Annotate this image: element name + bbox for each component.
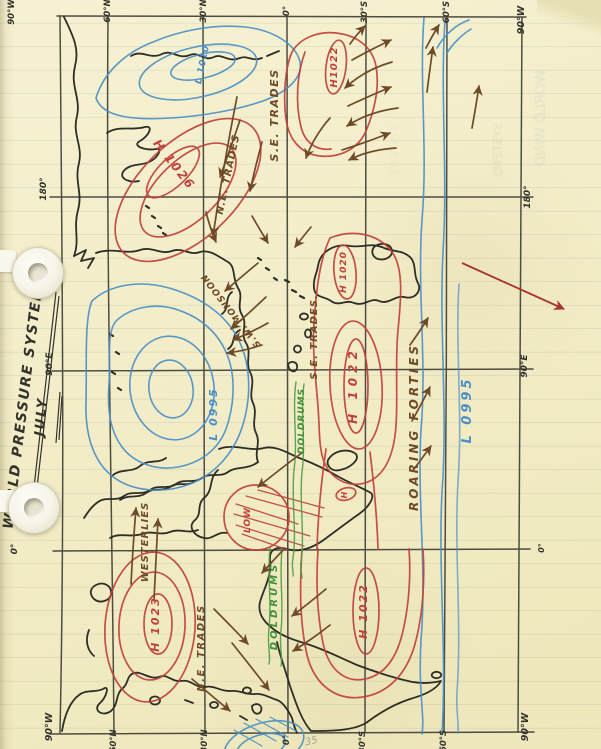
hand-drawn-map: WORLD WIND SYSTEMS SYSTEMS xyxy=(0,0,601,749)
axis-label: 0° xyxy=(10,544,20,555)
label-low-0995-south: L 0995 xyxy=(460,377,475,444)
map-graticule xyxy=(50,16,534,734)
label-westerlies: WESTERLIES xyxy=(140,502,151,583)
notebook-page: WORLD WIND SYSTEMS SYSTEMS xyxy=(0,0,601,749)
punch-hole xyxy=(8,482,60,534)
label-low-0995-asia: L 0995 xyxy=(207,387,220,440)
label-doldrums-2: DOLDRUMS xyxy=(269,562,280,650)
punch-hole xyxy=(12,247,64,299)
axis-label: 0° xyxy=(282,6,292,16)
label-low-center: LOW xyxy=(243,507,253,533)
axis-label: 60°S xyxy=(442,1,452,23)
label-doldrums-1: DOLDRUMS xyxy=(297,388,307,454)
label-high-1023: H 1023 xyxy=(149,596,162,652)
label-high-1020: H 1020 xyxy=(339,251,349,293)
label-ne-trades-south: N.E. TRADES xyxy=(196,604,207,691)
ghost-text-line2: SYSTEMS xyxy=(491,122,505,178)
axis-label: 60°S xyxy=(439,730,449,749)
axis-label: 90°E xyxy=(45,352,55,376)
month-underline xyxy=(56,392,62,443)
axis-label: 60°N xyxy=(109,729,119,749)
label-se-trades-south: S.E. TRADES. xyxy=(309,294,320,380)
axis-label: 0° xyxy=(282,735,292,745)
label-high-1022-s: H 1022 xyxy=(357,583,370,639)
red-isobars xyxy=(90,33,424,705)
axis-label: 30°S xyxy=(358,731,368,749)
label-high-1026: H 1026 xyxy=(150,137,198,193)
axis-label: 90°E xyxy=(520,354,530,378)
red-arrow xyxy=(462,263,564,309)
axis-label: 180° xyxy=(523,185,533,208)
label-sw-monsoon: S.W. MONSOON xyxy=(199,271,263,349)
axis-label: 0° xyxy=(537,543,546,553)
title-month: JULY xyxy=(32,397,51,440)
label-low-1010: L 1010 xyxy=(194,44,212,85)
axis-label: 60°N xyxy=(103,0,113,23)
pencil-page-number: 35 xyxy=(304,735,319,748)
label-high-1022-nw: H1022 xyxy=(329,46,340,87)
axis-label: 90°W xyxy=(7,0,17,25)
axis-label: 180° xyxy=(39,177,49,200)
axis-label: 90°W xyxy=(516,5,527,34)
axis-label: 30°N xyxy=(199,0,209,23)
label-high-1022-mid: H 1022 xyxy=(346,346,360,424)
ghost-text-line1: WORLD WIND xyxy=(533,70,549,167)
label-roaring-forties: ROARING FORTIES xyxy=(407,343,421,511)
axis-label: 30°S xyxy=(360,1,370,23)
label-ne-trades-north: N.E. TRADES xyxy=(215,133,243,215)
axis-label: 90°W xyxy=(44,712,55,741)
axis-label: 30°N xyxy=(200,729,210,749)
ghost-showthrough-text: WORLD WIND SYSTEMS SYSTEMS xyxy=(388,70,549,179)
label-se-trades-north: S.E. TRADES xyxy=(268,68,281,161)
label-high-small: H xyxy=(340,491,349,498)
axis-label: 90°W xyxy=(520,712,531,741)
